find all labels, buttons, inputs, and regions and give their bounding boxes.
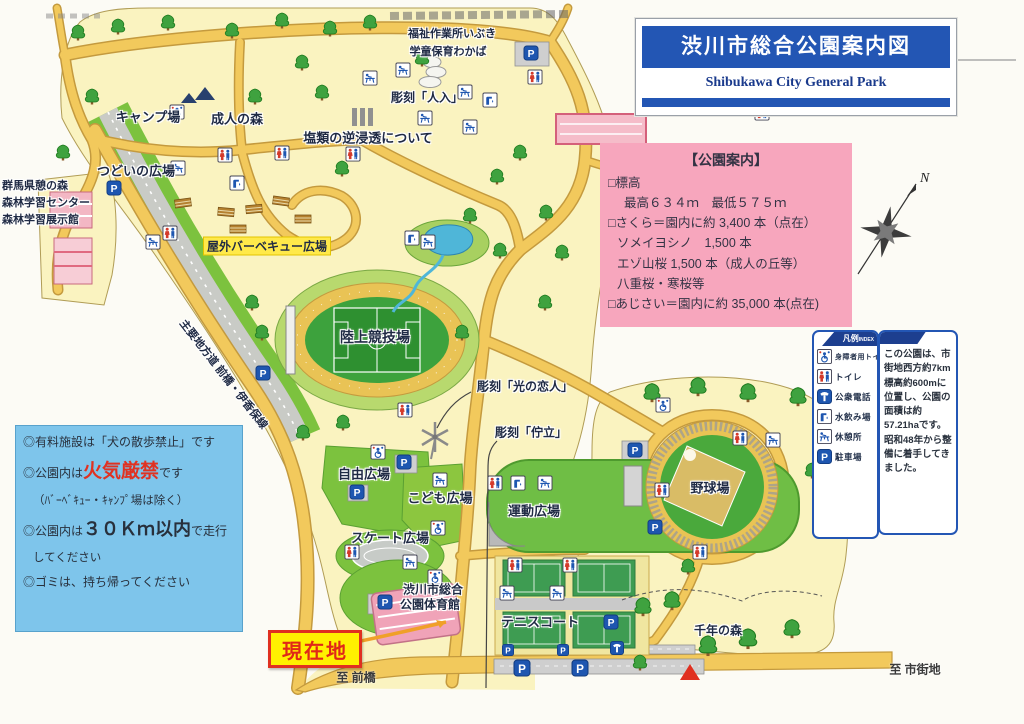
label-forest-exhibit-hall: 森林学習展示館 <box>2 211 79 227</box>
label-sculpture-jinnyu: 彫刻「人入」 <box>391 89 463 106</box>
rules-line-4: ◎公園内は３０Ｋｍ以内で走行 <box>23 518 235 541</box>
parking-icon: P <box>648 520 663 535</box>
toilet-icon <box>508 558 523 573</box>
label-undo-plaza: 運動広場 <box>508 501 560 520</box>
label-gym-name-2: 公園体育館 <box>400 596 460 613</box>
rules-line-3: （ﾊﾞｰﾍﾞｷｭｰ・ｷｬﾝﾌﾟ場は除く） <box>23 494 235 508</box>
rest-icon <box>421 235 436 250</box>
speed-limit-emphasis: ３０Ｋｍ以内 <box>83 519 191 539</box>
label-seijin-forest: 成人の森 <box>211 109 263 128</box>
rest-icon <box>766 433 781 448</box>
toilet-icon <box>693 545 708 560</box>
park-info-line: □標高 <box>608 173 844 193</box>
map-title-english: Shibukawa City General Park <box>636 68 956 98</box>
toilet-icon <box>275 146 290 161</box>
rules-line-6: ◎ゴミは、持ち帰ってください <box>23 575 235 590</box>
current-location-marker: 現在地 <box>268 630 362 668</box>
label-forest-learning-center: 森林学習センター <box>2 194 90 210</box>
scanned-park-map-page: N PPPPPPPPPPPPP キャンプ場成人の森つどいの広場群馬県憩の森森林学… <box>0 0 1024 724</box>
rest-icon <box>146 235 161 250</box>
park-info-line: □さくら＝園内に約 3,400 本（点在） <box>608 213 844 233</box>
rest-icon <box>500 586 515 601</box>
rest-icon <box>418 111 433 126</box>
legend-label: 身障者用トイレ <box>835 352 879 362</box>
legend-label: 公衆電話 <box>835 391 871 403</box>
legend-label: 休憩所 <box>835 431 862 443</box>
parking-icon: P <box>397 455 412 470</box>
fountain-icon <box>230 176 245 191</box>
phone-icon <box>610 641 624 655</box>
svg-text:P: P <box>260 369 267 380</box>
legend-label: 駐車場 <box>835 451 862 463</box>
svg-text:P: P <box>632 446 639 457</box>
legend-label: トイレ <box>835 371 862 383</box>
parking-icon: P <box>628 443 643 458</box>
park-description-box: この公園は、市街地西方約7km標高約600mに位置し、公園の面積は約57.21h… <box>878 330 958 535</box>
park-info-line: 最高６３４ｍ 最低５７５ｍ <box>608 193 844 213</box>
svg-text:P: P <box>382 598 389 609</box>
rest-icon <box>433 473 448 488</box>
fire-prohibited-emphasis: 火気厳禁 <box>83 461 159 482</box>
public-phone-icon <box>817 389 832 404</box>
rest-icon <box>396 63 411 78</box>
map-title-japanese: 渋川市総合公園案内図 <box>642 26 950 68</box>
rules-line-5: してください <box>23 551 235 565</box>
park-rules-box: ◎有料施設は「犬の散歩禁止」です ◎公園内は火気厳禁です （ﾊﾞｰﾍﾞｷｭｰ・ｷ… <box>15 425 243 632</box>
label-sennen-forest: 千年の森 <box>694 622 742 639</box>
svg-text:P: P <box>518 663 526 676</box>
toilet-icon <box>345 545 360 560</box>
svg-text:P: P <box>505 646 511 655</box>
toilet-icon <box>488 476 503 491</box>
toilet-icon <box>563 558 578 573</box>
rest-icon <box>550 586 565 601</box>
toilet-icon <box>218 148 233 163</box>
rules-line-2: ◎公園内は火気厳禁です <box>23 460 235 484</box>
label-tsudoi-plaza: つどいの広場 <box>97 161 175 180</box>
rules-line-4-pre: ◎公園内は <box>23 524 83 538</box>
label-to-shigaichi: 至 市街地 <box>889 661 940 678</box>
compass-n-label: N <box>919 171 930 186</box>
parking-icon: P <box>524 46 539 61</box>
parking-icon: P <box>256 366 271 381</box>
parking-icon: P <box>514 660 531 677</box>
park-info-line: 八重桜・寒桜等 <box>608 274 844 294</box>
rest-icon <box>463 120 478 135</box>
fountain-icon <box>405 231 420 246</box>
rest-icon <box>403 555 418 570</box>
svg-text:P: P <box>608 618 615 629</box>
park-description-text: この公園は、市街地西方約7km標高約600mに位置し、公園の面積は約57.21h… <box>880 344 956 480</box>
parking-icon: P <box>502 644 514 656</box>
legend-box: 凡例INDEX 身障者用トイレ トイレ 公衆電話 水飲み場 休憩所 P 駐車場 <box>812 330 879 539</box>
label-baseball-field: 野球場 <box>690 478 729 497</box>
label-kodomo-plaza: こども広場 <box>407 488 472 507</box>
toilet-icon <box>733 431 748 446</box>
label-jiyu-plaza: 自由広場 <box>338 464 390 483</box>
fountain-icon <box>483 93 498 108</box>
toilet-icon <box>346 147 361 162</box>
label-gunma-ikoi-forest: 群馬県憩の森 <box>2 177 68 193</box>
accessible-icon <box>371 445 386 460</box>
svg-text:P: P <box>821 453 828 464</box>
rest-icon <box>538 476 553 491</box>
rules-line-2-post: です <box>159 466 183 480</box>
rest-icon <box>363 71 378 86</box>
toilet-icon <box>817 369 832 384</box>
toilet-icon <box>163 226 178 241</box>
parking-icon: P <box>604 615 619 630</box>
parking-icon: P <box>378 595 393 610</box>
label-camp: キャンプ場 <box>116 107 181 126</box>
legend-item-phone: 公衆電話 <box>814 386 877 406</box>
legend-heading-en: INDEX <box>859 337 874 343</box>
label-bbq-plaza: 屋外バーベキュー広場 <box>204 238 330 255</box>
rules-line-2-pre: ◎公園内は <box>23 466 83 480</box>
fountain-icon <box>511 476 526 491</box>
label-tennis-court: テニスコート <box>501 612 579 631</box>
rules-line-4-post: で走行 <box>191 524 227 538</box>
parking-icon: P <box>107 181 122 196</box>
label-athletics-stadium: 陸上競技場 <box>340 327 410 347</box>
title-band-decoration <box>642 98 950 107</box>
compass-rose: N <box>856 171 930 274</box>
svg-text:P: P <box>401 458 408 469</box>
legend-label: 水飲み場 <box>835 411 871 423</box>
park-info-line: □あじさい＝園内に約 35,000 本(点在) <box>608 294 844 314</box>
legend-item-toilet: トイレ <box>814 366 877 386</box>
svg-text:P: P <box>560 646 566 655</box>
rest-area-icon <box>817 429 832 444</box>
legend-heading-jp: 凡例 <box>843 334 859 343</box>
legend-heading: 凡例INDEX <box>822 332 877 346</box>
legend-item-fountain: 水飲み場 <box>814 406 877 426</box>
accessible-icon <box>431 521 446 536</box>
legend-item-accessible-toilet: 身障者用トイレ <box>814 346 877 366</box>
label-gakudo-wakaba: 学童保育わかば <box>410 43 487 59</box>
label-sculpture-hikari: 彫刻「光の恋人」 <box>477 378 573 395</box>
park-info-heading: 【公園案内】 <box>608 149 844 172</box>
label-fukushi-ibuki: 福祉作業所いぶき <box>408 25 496 41</box>
legend-item-parking: P 駐車場 <box>814 446 877 466</box>
rules-line-1: ◎有料施設は「犬の散歩禁止」です <box>23 435 235 450</box>
park-info-line: エゾ山桜 1,500 本（成人の丘等） <box>608 254 844 274</box>
toilet-icon <box>528 70 543 85</box>
drinking-fountain-icon <box>817 409 832 424</box>
label-skate-plaza: スケート広場 <box>351 528 429 547</box>
svg-text:P: P <box>528 49 535 60</box>
label-sculpture-choritsu: 彫刻「佇立」 <box>495 424 567 441</box>
parking-icon: P <box>572 660 589 677</box>
accessible-icon <box>656 398 671 413</box>
parking-icon: P <box>817 449 832 464</box>
svg-text:P: P <box>111 184 118 195</box>
park-info-box: 【公園案内】 □標高 最高６３４ｍ 最低５７５ｍ □さくら＝園内に約 3,400… <box>600 143 852 327</box>
park-info-line: ソメイヨシノ 1,500 本 <box>608 233 844 253</box>
svg-text:P: P <box>576 663 584 676</box>
legend-item-rest: 休憩所 <box>814 426 877 446</box>
label-sculpture-enrui: 塩類の逆浸透について <box>303 128 433 147</box>
label-to-maebashi: 至 前橋 <box>336 669 375 686</box>
svg-text:P: P <box>652 523 659 534</box>
toilet-icon <box>655 483 670 498</box>
parking-icon: P <box>557 644 569 656</box>
gate-sculpture <box>352 108 373 126</box>
accessible-toilet-icon <box>817 349 832 364</box>
svg-text:P: P <box>354 488 361 499</box>
parking-icon: P <box>350 485 365 500</box>
map-title-box: 渋川市総合公園案内図 Shibukawa City General Park <box>635 18 957 116</box>
description-heading-band <box>880 332 926 344</box>
toilet-icon <box>398 403 413 418</box>
